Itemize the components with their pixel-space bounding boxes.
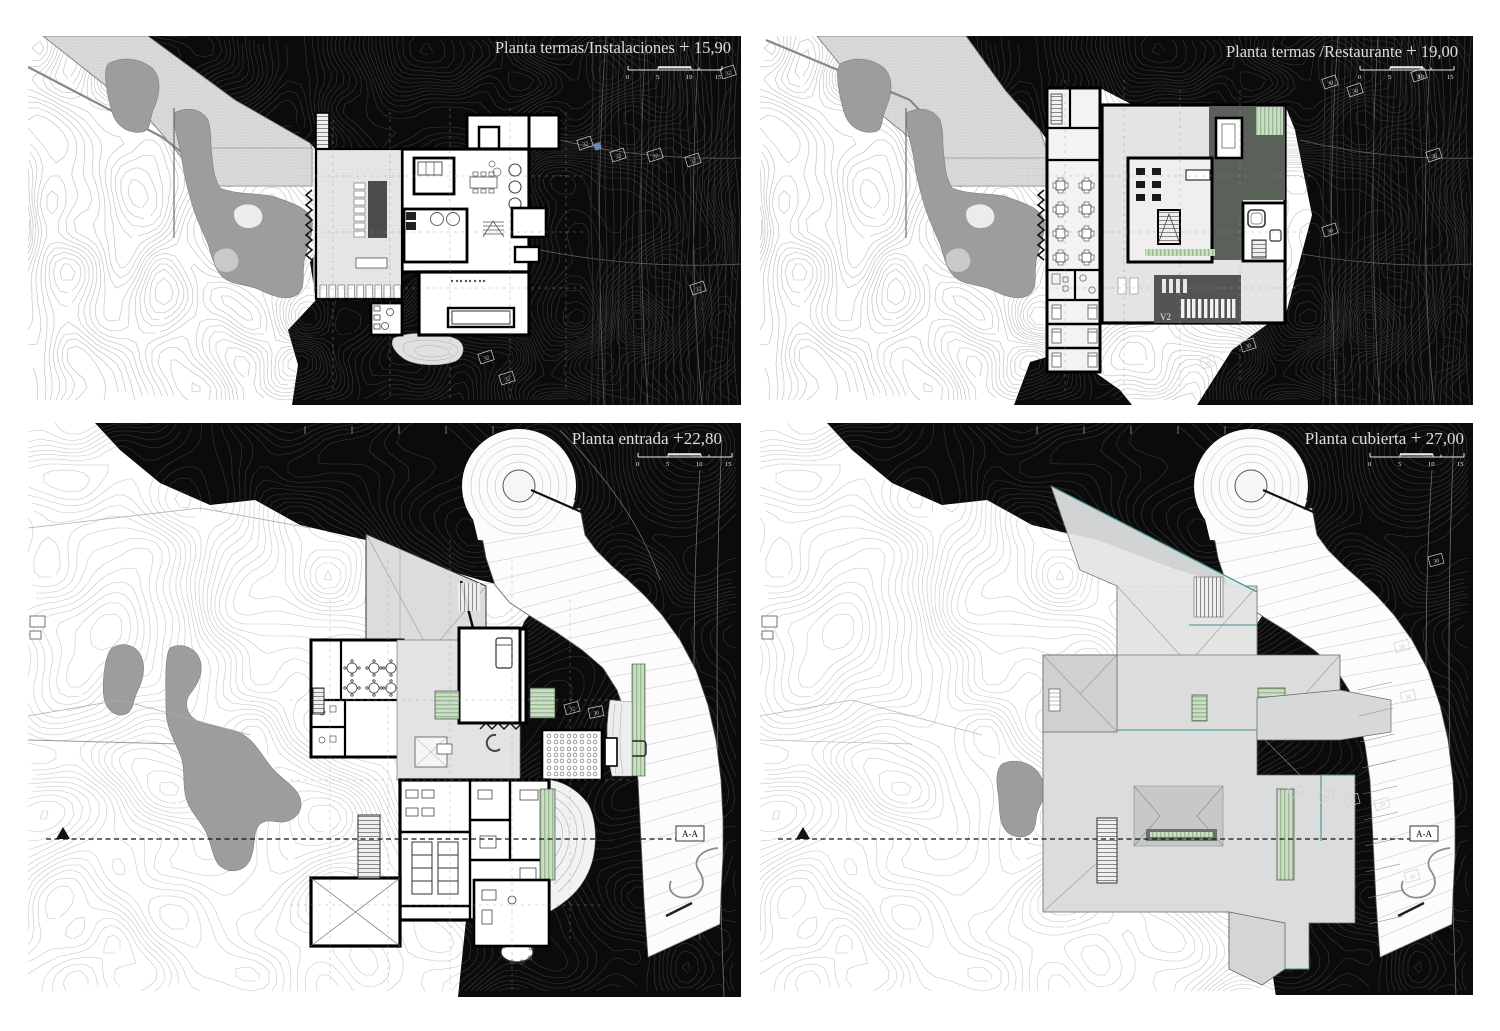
svg-text:15: 15	[725, 461, 732, 468]
svg-text:15: 15	[715, 74, 722, 81]
svg-text:10: 10	[1428, 461, 1435, 468]
svg-text:5: 5	[666, 461, 669, 468]
svg-text:A-A: A-A	[1416, 829, 1432, 839]
svg-text:30: 30	[593, 710, 600, 717]
svg-text:0: 0	[636, 461, 639, 468]
svg-text:5: 5	[1388, 74, 1391, 81]
svg-text:10: 10	[696, 461, 703, 468]
svg-text:15: 15	[1457, 461, 1464, 468]
svg-text:V2: V2	[1160, 312, 1171, 322]
svg-text:Planta termas /Restaurante + 1: Planta termas /Restaurante + 19,00	[1226, 41, 1458, 62]
svg-text:Planta cubierta + 27,00: Planta cubierta + 27,00	[1305, 428, 1464, 449]
svg-text:10: 10	[1418, 74, 1425, 81]
svg-text:0: 0	[626, 74, 629, 81]
svg-text:Planta termas/Instalaciones +: Planta termas/Instalaciones + 15,90	[495, 37, 731, 58]
svg-text:5: 5	[1398, 461, 1401, 468]
svg-text:0: 0	[1358, 74, 1361, 81]
svg-text:5: 5	[656, 74, 659, 81]
svg-text:0: 0	[1368, 461, 1371, 468]
svg-text:A-A: A-A	[682, 829, 698, 839]
svg-text:Planta entrada +22,80: Planta entrada +22,80	[572, 428, 722, 449]
svg-text:10: 10	[686, 74, 693, 81]
svg-text:15: 15	[1447, 74, 1454, 81]
